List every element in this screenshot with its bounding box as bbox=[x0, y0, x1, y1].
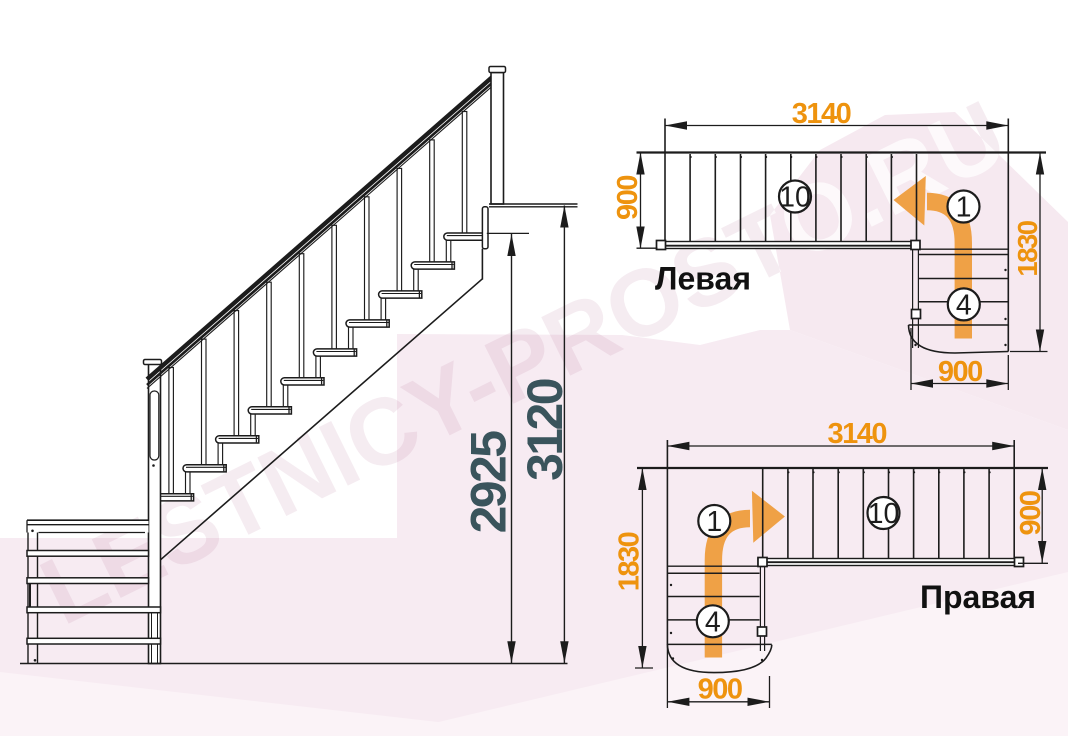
svg-text:1830: 1830 bbox=[614, 532, 646, 591]
svg-text:1830: 1830 bbox=[1012, 220, 1043, 276]
svg-text:Левая: Левая bbox=[655, 260, 751, 296]
svg-text:900: 900 bbox=[612, 176, 644, 220]
svg-text:10: 10 bbox=[868, 498, 900, 530]
svg-text:900: 900 bbox=[698, 673, 742, 705]
svg-text:Правая: Правая bbox=[920, 579, 1036, 615]
svg-text:3140: 3140 bbox=[792, 98, 851, 130]
svg-text:2925: 2925 bbox=[460, 431, 516, 534]
svg-text:3120: 3120 bbox=[517, 379, 573, 481]
svg-text:1: 1 bbox=[956, 191, 972, 223]
svg-text:4: 4 bbox=[705, 606, 721, 638]
svg-text:4: 4 bbox=[956, 289, 972, 321]
svg-text:10: 10 bbox=[779, 181, 811, 213]
svg-text:1: 1 bbox=[706, 506, 722, 538]
svg-text:3140: 3140 bbox=[828, 418, 887, 450]
svg-text:900: 900 bbox=[938, 356, 982, 388]
svg-text:900: 900 bbox=[1015, 491, 1047, 535]
